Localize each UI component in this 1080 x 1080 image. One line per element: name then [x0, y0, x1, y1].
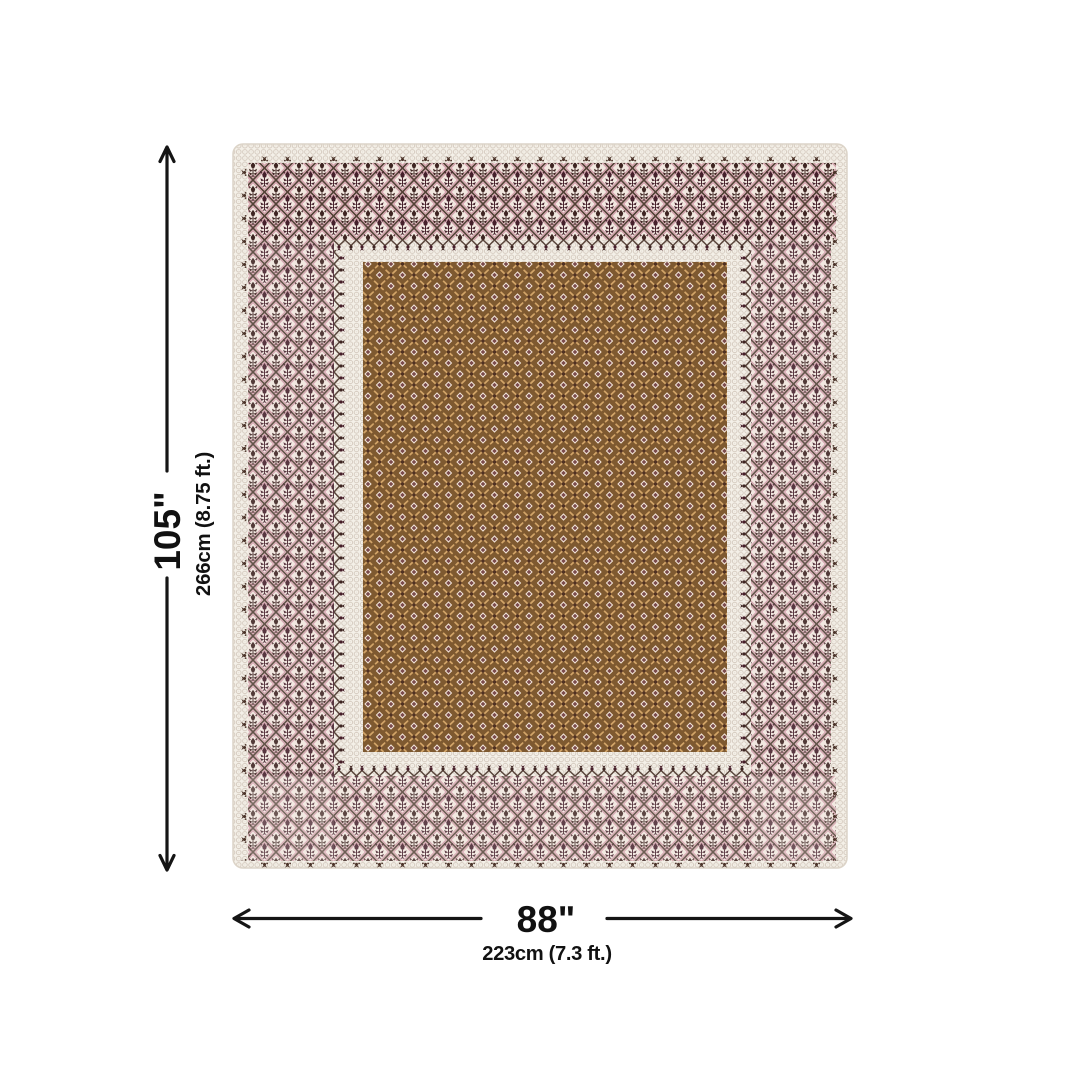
svg-text:88": 88": [517, 899, 576, 940]
svg-text:266cm (8.75 ft.): 266cm (8.75 ft.): [193, 452, 215, 596]
svg-text:105": 105": [147, 491, 188, 570]
svg-text:223cm (7.3 ft.): 223cm (7.3 ft.): [482, 943, 611, 965]
